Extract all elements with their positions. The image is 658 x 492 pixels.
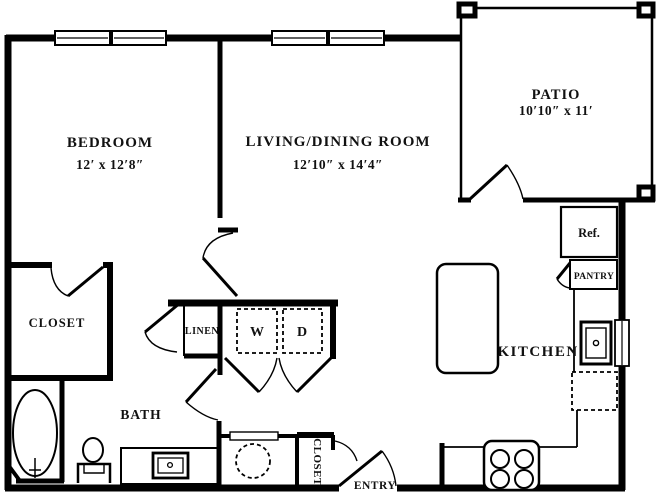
patio-dims: 10′10″ x 11′ [519, 103, 593, 118]
kitchen-sink [581, 320, 629, 366]
toilet [78, 438, 110, 483]
bathtub [13, 390, 57, 478]
entry-closet-label: CLOSET [311, 438, 323, 486]
kitchen-island [437, 264, 498, 373]
stove [484, 441, 539, 490]
entry-closet-walls [297, 435, 357, 461]
utility-closet [219, 421, 298, 489]
bath-hall-door [145, 303, 180, 352]
bedroom-windows [55, 31, 166, 45]
pantry-label: PANTRY [574, 272, 614, 282]
bedroom-door [203, 233, 237, 296]
living-dining-label: LIVING/DINING ROOM [245, 134, 430, 150]
bath-door [186, 369, 218, 420]
water-heater-icon [236, 444, 270, 478]
patio-post-icon [459, 4, 475, 16]
kitchen-label: KITCHEN [497, 344, 578, 360]
dryer-label: D [297, 325, 307, 340]
patio-door [470, 165, 523, 199]
pantry-door [557, 263, 570, 288]
living-room-windows [272, 31, 384, 45]
bedroom-dims: 12′ x 12′8″ [76, 157, 144, 172]
bath-vanity [121, 448, 218, 484]
patio-label: PATIO [532, 87, 581, 103]
patio-post-icon [639, 4, 653, 16]
floor-plan: BEDROOM 12′ x 12′8″ LIVING/DINING ROOM 1… [0, 0, 658, 492]
bedroom-closet-door [51, 267, 103, 296]
floor-plan-drawing: BEDROOM 12′ x 12′8″ LIVING/DINING ROOM 1… [0, 0, 658, 492]
washer-label: W [250, 325, 264, 340]
entry-label: ENTRY [354, 480, 397, 492]
washer-dryer [225, 309, 331, 392]
bedroom-closet-label: CLOSET [29, 316, 86, 330]
bath-label: BATH [120, 407, 161, 422]
linen-label: LINEN [185, 326, 219, 337]
patio-post-icon [639, 187, 653, 199]
dishwasher-icon [572, 372, 617, 410]
refrigerator-label: Ref. [578, 226, 600, 240]
washer-dryer-doors [225, 358, 331, 392]
bedroom-label: BEDROOM [67, 135, 153, 151]
bedroom-wall [203, 38, 238, 296]
living-dining-dims: 12′10″ x 14′4″ [293, 157, 383, 172]
